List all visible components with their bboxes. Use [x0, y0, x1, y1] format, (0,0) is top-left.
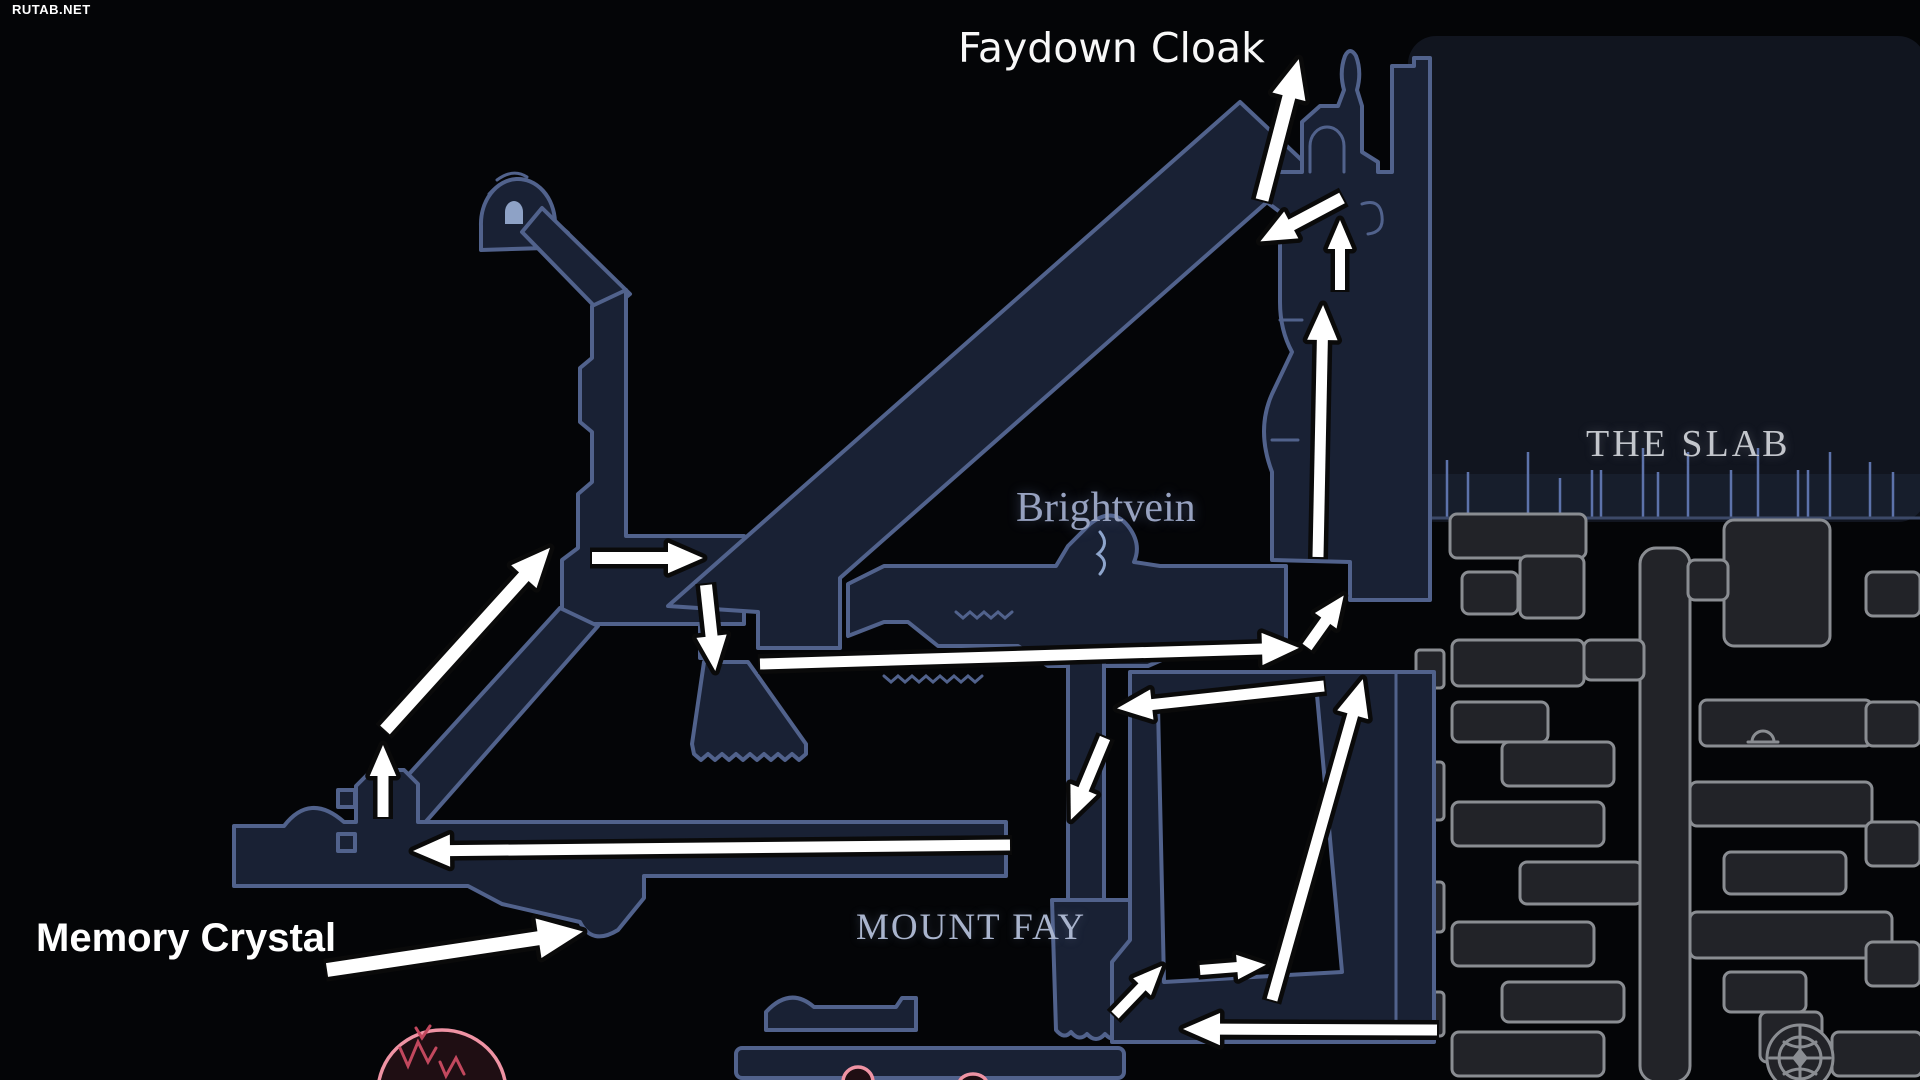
route-arrow-7 [1306, 596, 1344, 649]
map-canvas [0, 0, 1920, 1080]
mount-fay-map [234, 51, 1434, 1078]
red-dot-marker [843, 1067, 873, 1080]
slab-region [1408, 36, 1920, 1080]
route-arrow-2 [370, 745, 397, 819]
map-screenshot: { "watermark": {"text": "RUTAB.NET"}, "l… [0, 0, 1920, 1080]
skirt-room [692, 662, 806, 760]
slab-maze [1416, 514, 1920, 1080]
slab-glow-band [1408, 474, 1920, 518]
red-dot-marker-2 [959, 1074, 987, 1080]
red-circle-marker [378, 1030, 506, 1080]
slab-backdrop [1408, 36, 1920, 522]
route-arrow-9 [1328, 220, 1353, 292]
compass-icon [1767, 1025, 1833, 1080]
route-arrow-1 [325, 919, 583, 971]
slab-trunk-shaft [1640, 548, 1690, 1080]
dome-door [505, 201, 523, 224]
route-arrow-12 [1117, 686, 1326, 720]
bottom-platform [736, 1048, 1124, 1078]
